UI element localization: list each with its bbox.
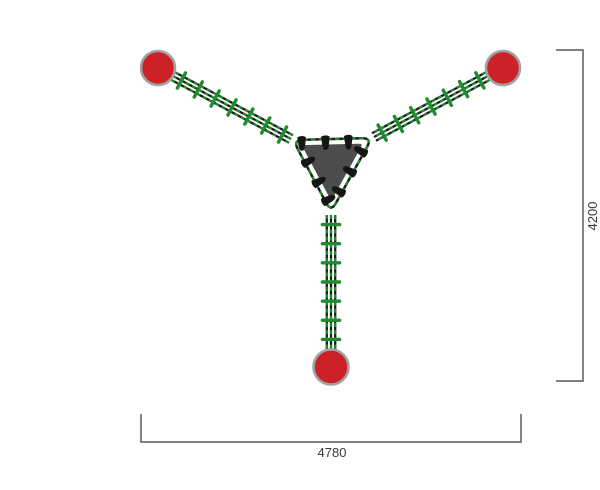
drawing-svg: 42004780: [40, 16, 600, 474]
dimension-height-label: 4200: [585, 202, 600, 231]
drawing-background: [40, 16, 600, 474]
post-top-left: [141, 51, 175, 85]
post-bottom: [314, 350, 349, 385]
post-top-right: [486, 51, 520, 85]
technical-drawing: 42004780: [40, 16, 600, 474]
